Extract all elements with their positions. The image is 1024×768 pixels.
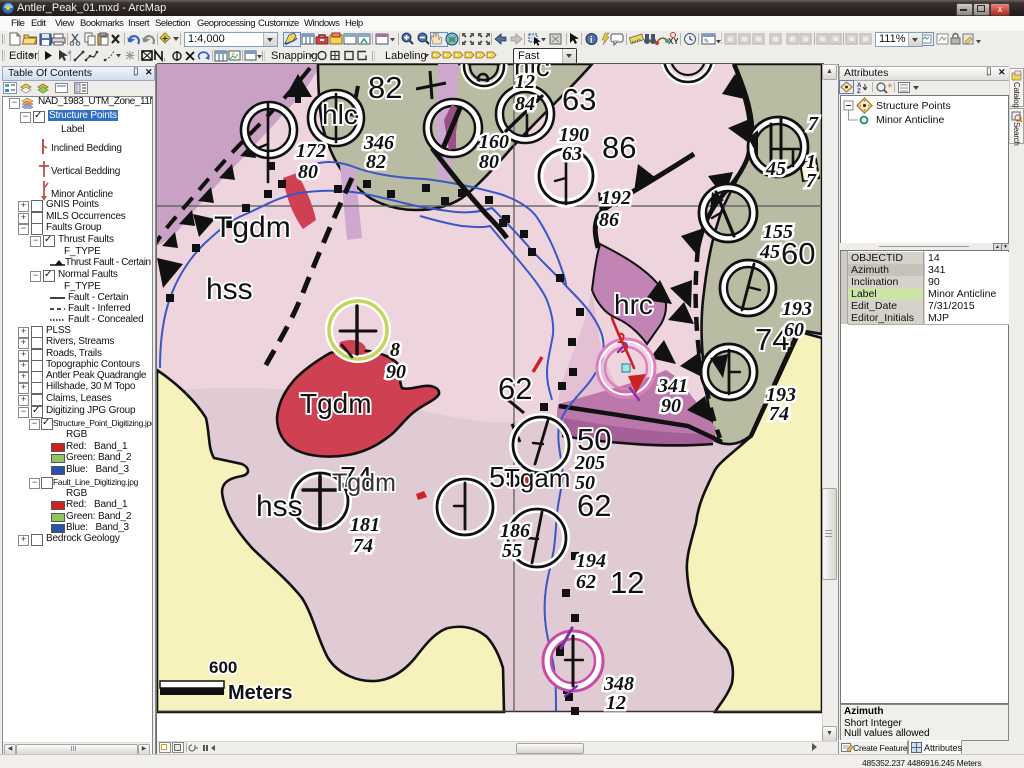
svg-text:186: 186	[500, 520, 530, 542]
svg-text:hss: hss	[206, 273, 253, 306]
svg-text:hss: hss	[256, 490, 303, 523]
svg-text:82: 82	[366, 151, 386, 173]
svg-text:Tgam: Tgam	[504, 463, 570, 493]
svg-text:Minor Anticline: Minor Anticline	[876, 114, 944, 126]
svg-text:205: 205	[574, 452, 605, 474]
svg-text:55: 55	[502, 540, 522, 562]
svg-text:62: 62	[576, 571, 596, 593]
svg-text:✳: ✳	[67, 50, 72, 57]
svg-text:Editor: Editor	[9, 50, 38, 62]
svg-text:82: 82	[368, 70, 402, 105]
svg-text:Labeling: Labeling	[385, 50, 427, 62]
svg-text:12: 12	[610, 565, 644, 600]
svg-text:60: 60	[784, 319, 804, 341]
svg-text:Tgdm: Tgdm	[300, 388, 372, 419]
svg-text:181: 181	[350, 514, 380, 536]
svg-text:160: 160	[479, 131, 509, 153]
svg-text:7: 7	[808, 113, 819, 135]
svg-text:XY: XY	[668, 37, 679, 46]
svg-text:84: 84	[515, 93, 535, 115]
svg-text:62: 62	[498, 371, 532, 406]
svg-text:193: 193	[782, 298, 812, 320]
svg-text:hlc: hlc	[322, 99, 358, 130]
svg-text:74: 74	[769, 403, 789, 425]
svg-text:63: 63	[562, 82, 596, 117]
svg-text:50: 50	[575, 472, 595, 494]
svg-text:80: 80	[479, 151, 499, 173]
svg-text:45: 45	[765, 158, 786, 180]
svg-text:Meters: Meters	[228, 682, 292, 704]
svg-text:8: 8	[390, 339, 400, 361]
svg-text:172: 172	[296, 140, 326, 162]
svg-text:90: 90	[661, 395, 681, 417]
svg-text:...: ...	[613, 36, 619, 43]
svg-text:45: 45	[759, 241, 780, 263]
svg-text:12: 12	[515, 71, 535, 93]
svg-text:74: 74	[353, 535, 373, 557]
svg-text:341: 341	[657, 375, 688, 397]
svg-text:192: 192	[601, 187, 631, 209]
svg-text:90: 90	[386, 361, 406, 383]
svg-text:86: 86	[602, 130, 636, 165]
svg-text:Tgdm: Tgdm	[332, 469, 396, 497]
svg-text:600: 600	[209, 658, 237, 677]
svg-text:✎: ✎	[704, 38, 709, 45]
svg-text:63: 63	[562, 143, 582, 165]
svg-text:86: 86	[599, 209, 619, 231]
svg-text:Tgdm: Tgdm	[214, 211, 291, 244]
svg-text:Structure Points: Structure Points	[876, 100, 951, 112]
svg-text:155: 155	[763, 221, 793, 243]
svg-text:194: 194	[576, 550, 606, 572]
svg-text:7: 7	[806, 170, 817, 192]
svg-text:12: 12	[606, 692, 626, 714]
svg-text:hrc: hrc	[614, 289, 653, 320]
svg-text:✳: ✳	[887, 82, 893, 90]
svg-text:80: 80	[298, 161, 318, 183]
